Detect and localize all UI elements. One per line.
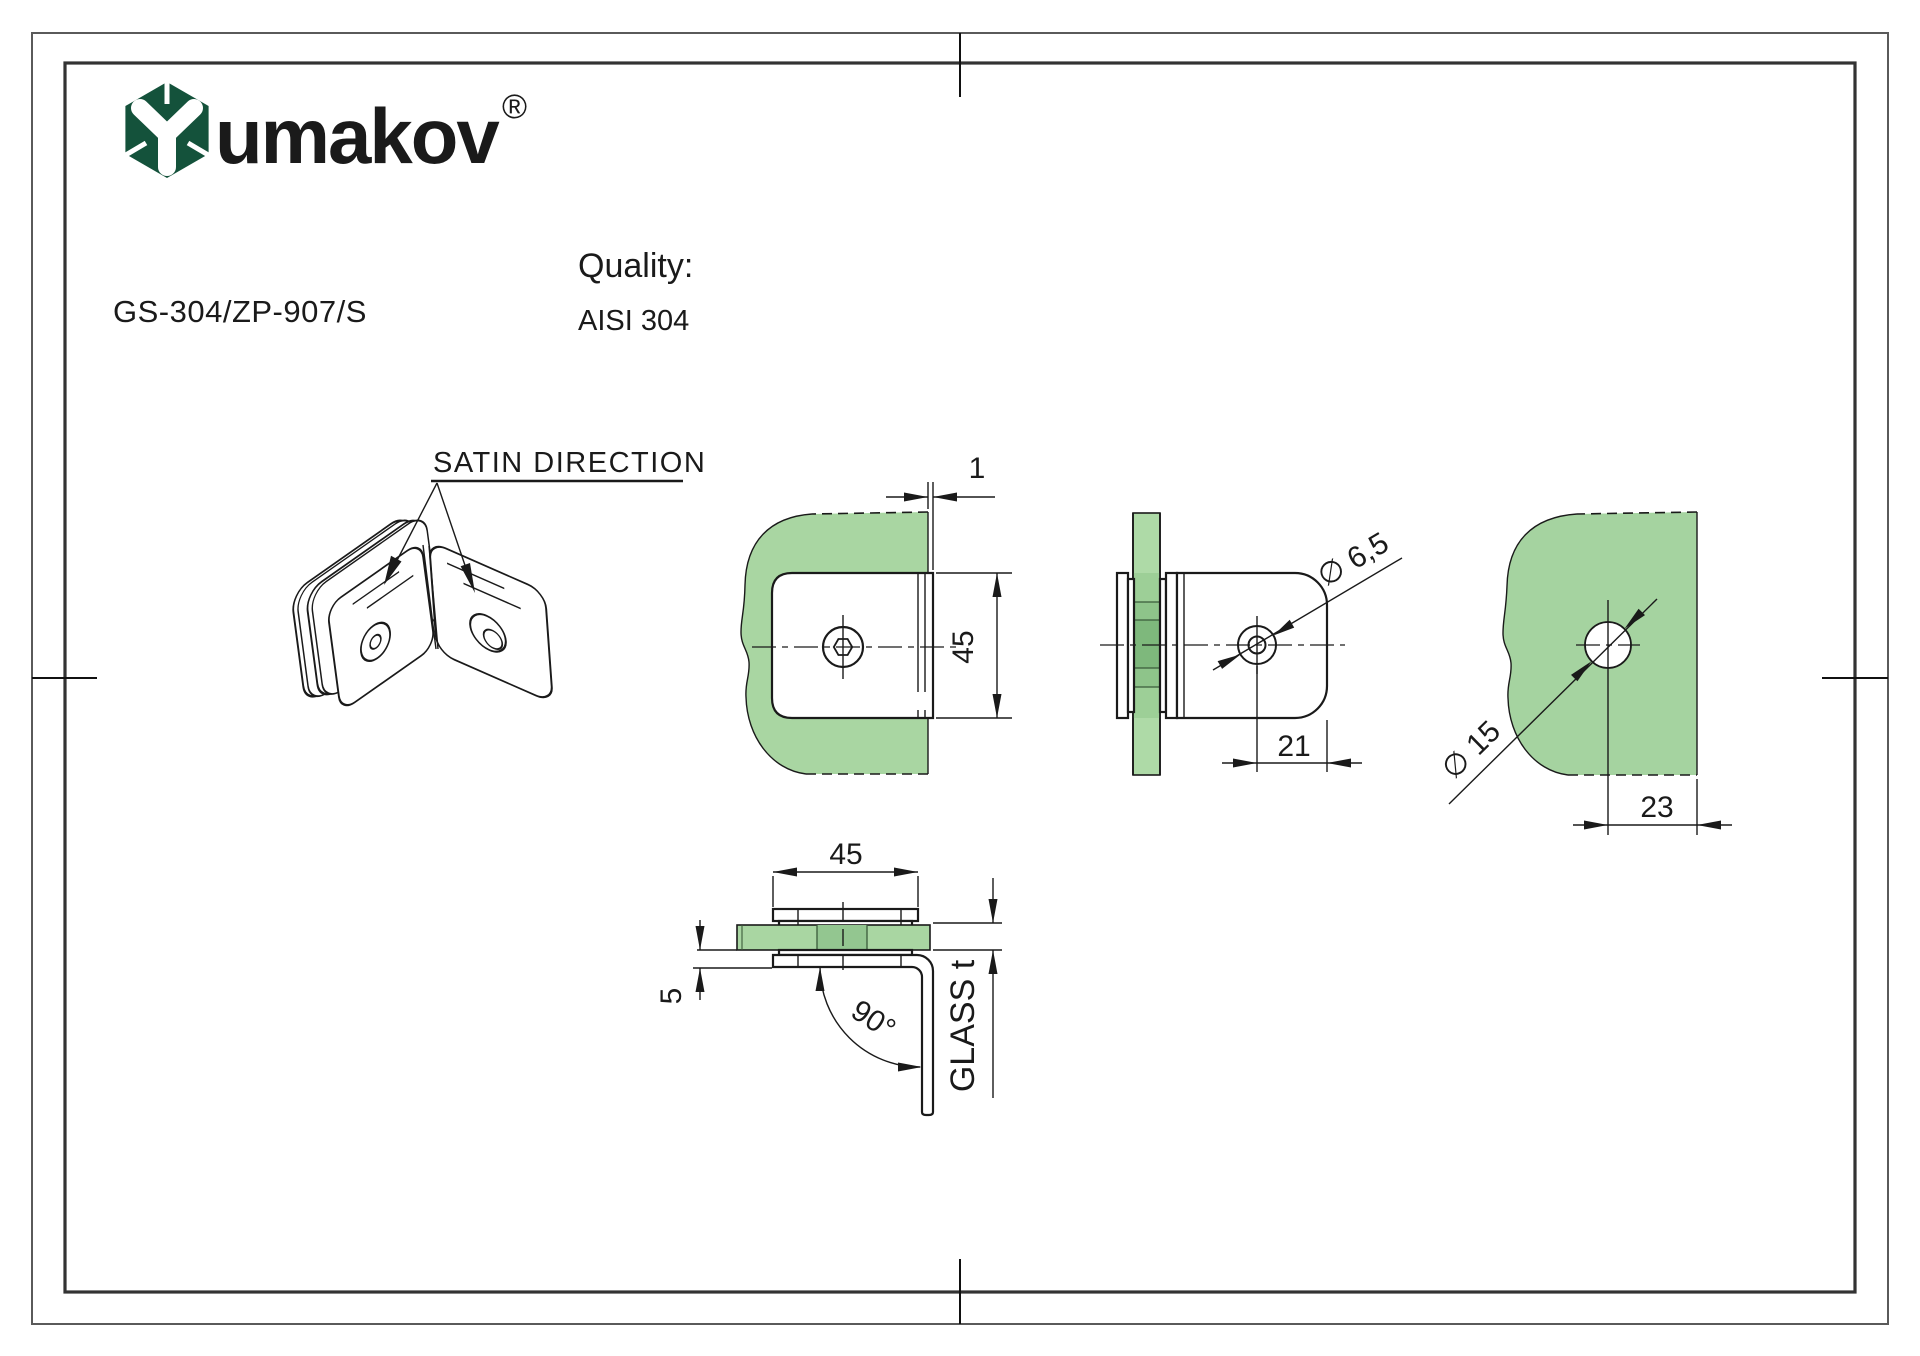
dim-text-45v: 45	[947, 630, 980, 663]
dimension-glass-thickness: GLASS t	[933, 878, 1002, 1098]
logo-wordmark: umakov	[215, 92, 500, 180]
satin-direction-label: SATIN DIRECTION	[433, 447, 706, 479]
dim-text-1: 1	[969, 452, 986, 485]
clamp-right-wing	[429, 541, 553, 703]
registered-mark: ®	[502, 88, 527, 126]
isometric-view: SATIN DIRECTION	[291, 447, 706, 714]
technical-drawing: umakov ® GS-304/ZP-907/S Quality: AISI 3…	[0, 0, 1920, 1356]
glass-section	[737, 925, 930, 950]
dim-text-23: 23	[1640, 791, 1673, 824]
side-view: ∅ 6,5 21	[1100, 513, 1402, 775]
bottom-view: 45 5 90° GLASS t	[655, 838, 1002, 1115]
dimension-bend-angle-90: 90°	[816, 967, 923, 1072]
glass-edge	[1133, 513, 1160, 775]
umakov-logo: umakov ®	[124, 80, 527, 180]
dim-text-21: 21	[1277, 730, 1310, 763]
front-view: 1 45	[741, 452, 1012, 774]
dim-text-90: 90°	[845, 994, 901, 1046]
dim-text-dia15: ∅ 15	[1436, 715, 1508, 786]
top-plate	[773, 909, 918, 921]
dimension-plate-width-45: 45	[773, 838, 918, 907]
dim-text-5: 5	[655, 988, 688, 1005]
drawing-sheet: umakov ® GS-304/ZP-907/S Quality: AISI 3…	[0, 0, 1920, 1356]
dim-text-glass-t: GLASS t	[944, 959, 982, 1092]
dimension-plate-height-45: 45	[936, 573, 1012, 718]
dim-text-45h: 45	[829, 838, 862, 871]
bent-plate-L	[773, 955, 933, 1115]
title-block: GS-304/ZP-907/S Quality: AISI 304	[113, 247, 693, 337]
dim-text-dia65: ∅ 6,5	[1312, 526, 1394, 593]
quality-label: Quality:	[578, 247, 693, 285]
product-code: GS-304/ZP-907/S	[113, 294, 367, 329]
glass-hole-view: ∅ 15 23	[1436, 512, 1732, 835]
quality-value: AISI 304	[578, 305, 689, 337]
